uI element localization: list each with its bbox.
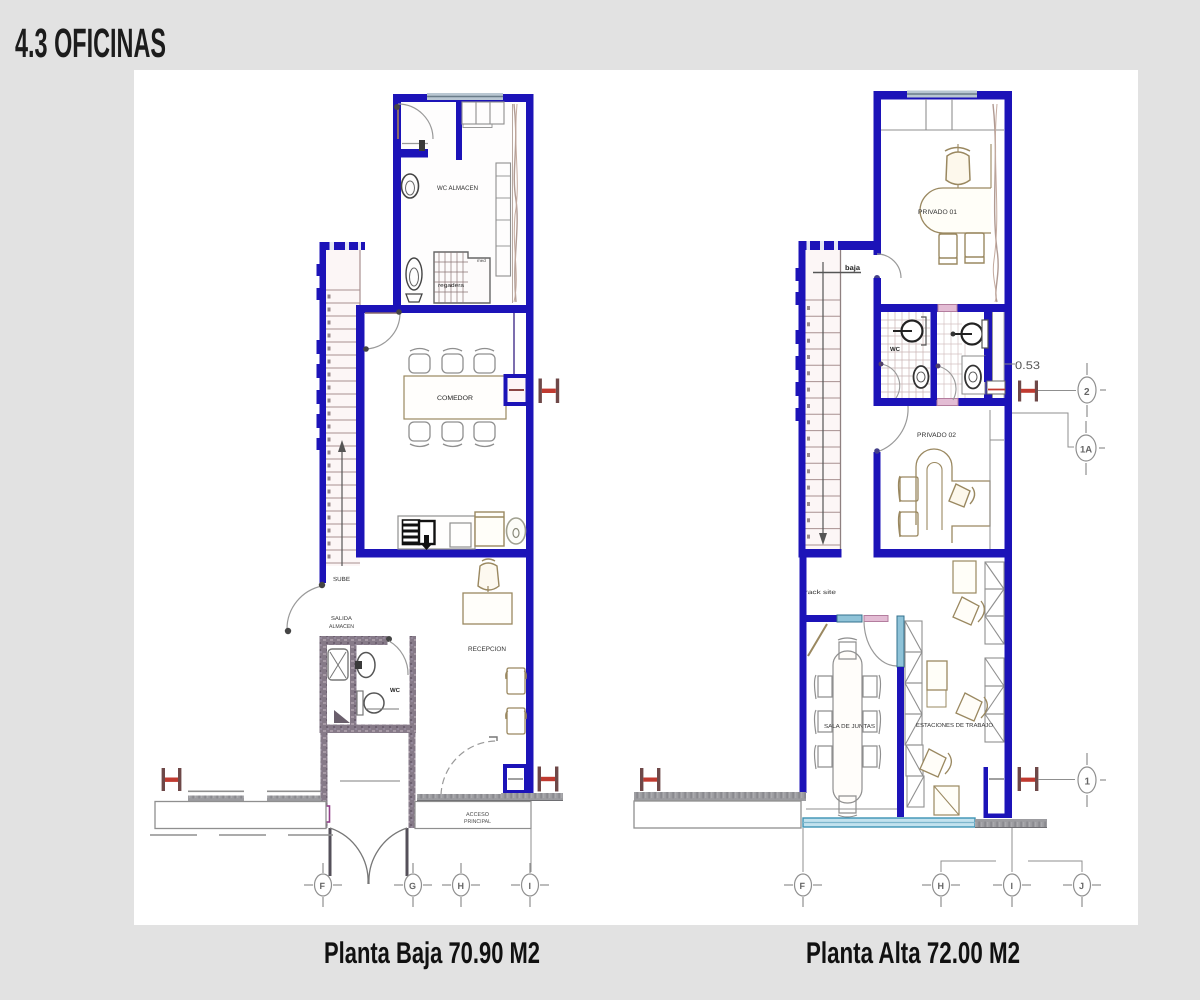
svg-text:ESTACIONES DE TRABAJO: ESTACIONES DE TRABAJO [916, 722, 993, 729]
svg-text:H: H [938, 881, 945, 891]
svg-text:SUBE: SUBE [333, 576, 350, 583]
svg-text:ALMACEN: ALMACEN [329, 624, 354, 630]
svg-text:F: F [320, 881, 326, 891]
svg-text:H: H [458, 881, 465, 891]
svg-text:I: I [1011, 881, 1014, 891]
svg-text:RECEPCION: RECEPCION [468, 646, 506, 653]
svg-text:WC: WC [890, 346, 901, 353]
svg-text:PRIVADO 02: PRIVADO 02 [917, 432, 956, 439]
svg-text:Planta Alta 72.00 M2: Planta Alta 72.00 M2 [806, 937, 1020, 970]
svg-text:SALIDA: SALIDA [331, 616, 352, 622]
svg-text:PRIVADO 01: PRIVADO 01 [918, 209, 957, 216]
svg-text:4.3 OFICINAS: 4.3 OFICINAS [15, 20, 166, 66]
svg-text:COMEDOR: COMEDOR [437, 395, 473, 402]
svg-text:WC: WC [390, 687, 401, 694]
svg-text:ACCESO: ACCESO [466, 812, 490, 818]
svg-text:WC ALMACEN: WC ALMACEN [437, 185, 478, 192]
svg-text:J: J [1079, 881, 1084, 891]
svg-text:1A: 1A [1080, 445, 1092, 456]
svg-text:2: 2 [1084, 387, 1090, 398]
svg-text:1: 1 [1085, 777, 1091, 788]
svg-text:PRINCIPAL: PRINCIPAL [464, 819, 491, 825]
svg-text:G: G [409, 881, 416, 891]
svg-text:baja: baja [845, 264, 860, 272]
svg-text:med: med [477, 258, 486, 263]
svg-text:0.53: 0.53 [1015, 360, 1040, 372]
svg-text:regadera: regadera [438, 283, 465, 289]
svg-text:I: I [529, 881, 532, 891]
svg-text:Planta Baja 70.90 M2: Planta Baja 70.90 M2 [324, 937, 540, 970]
svg-text:rack site: rack site [805, 589, 837, 596]
svg-text:F: F [800, 881, 806, 891]
